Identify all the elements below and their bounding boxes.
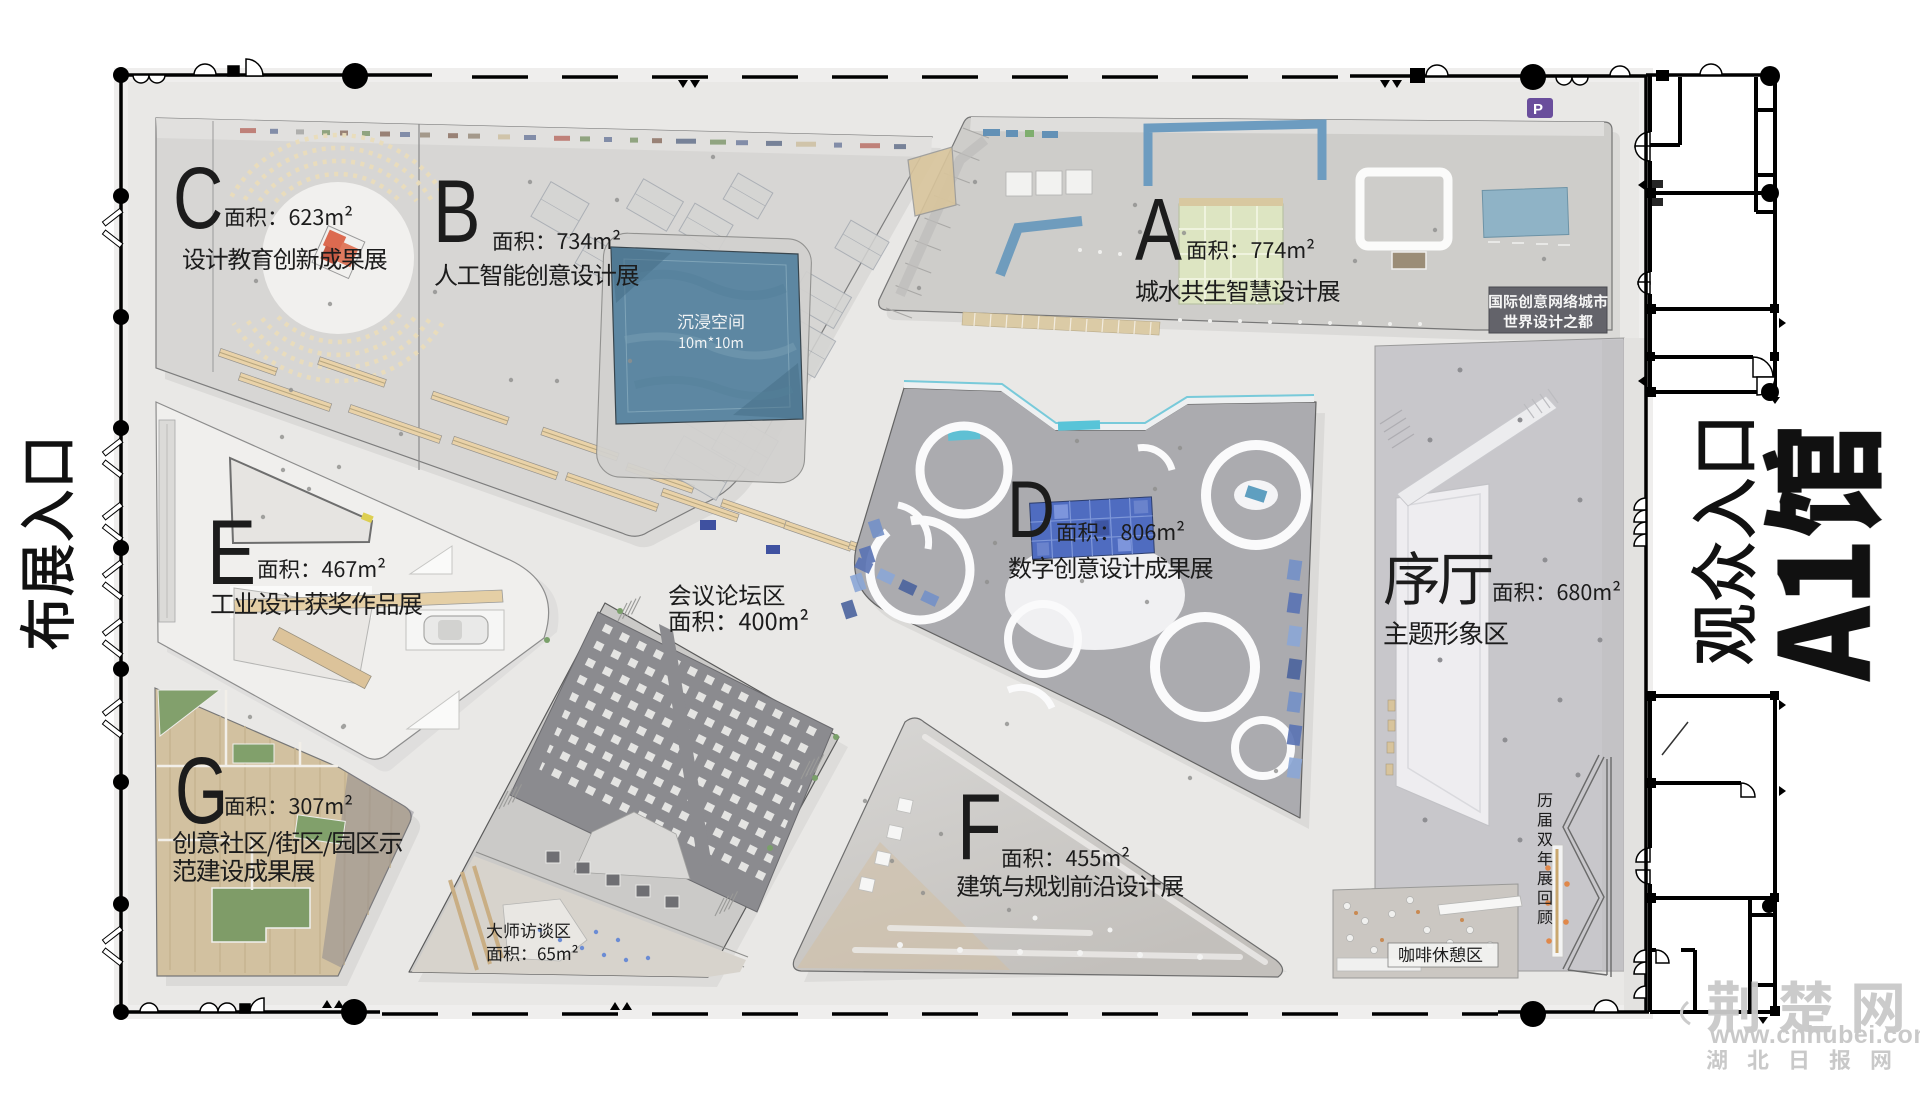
svg-text:D: D (1007, 464, 1055, 555)
svg-text:A: A (1135, 180, 1182, 278)
svg-text:F: F (957, 774, 1002, 879)
svg-text:G: G (175, 737, 228, 844)
svg-text:P: P (1533, 101, 1543, 118)
svg-text:www.cnhubei.com: www.cnhubei.com (1709, 1021, 1920, 1049)
svg-text:B: B (433, 162, 480, 261)
svg-text:C: C (173, 150, 223, 247)
svg-text:E: E (207, 501, 256, 604)
